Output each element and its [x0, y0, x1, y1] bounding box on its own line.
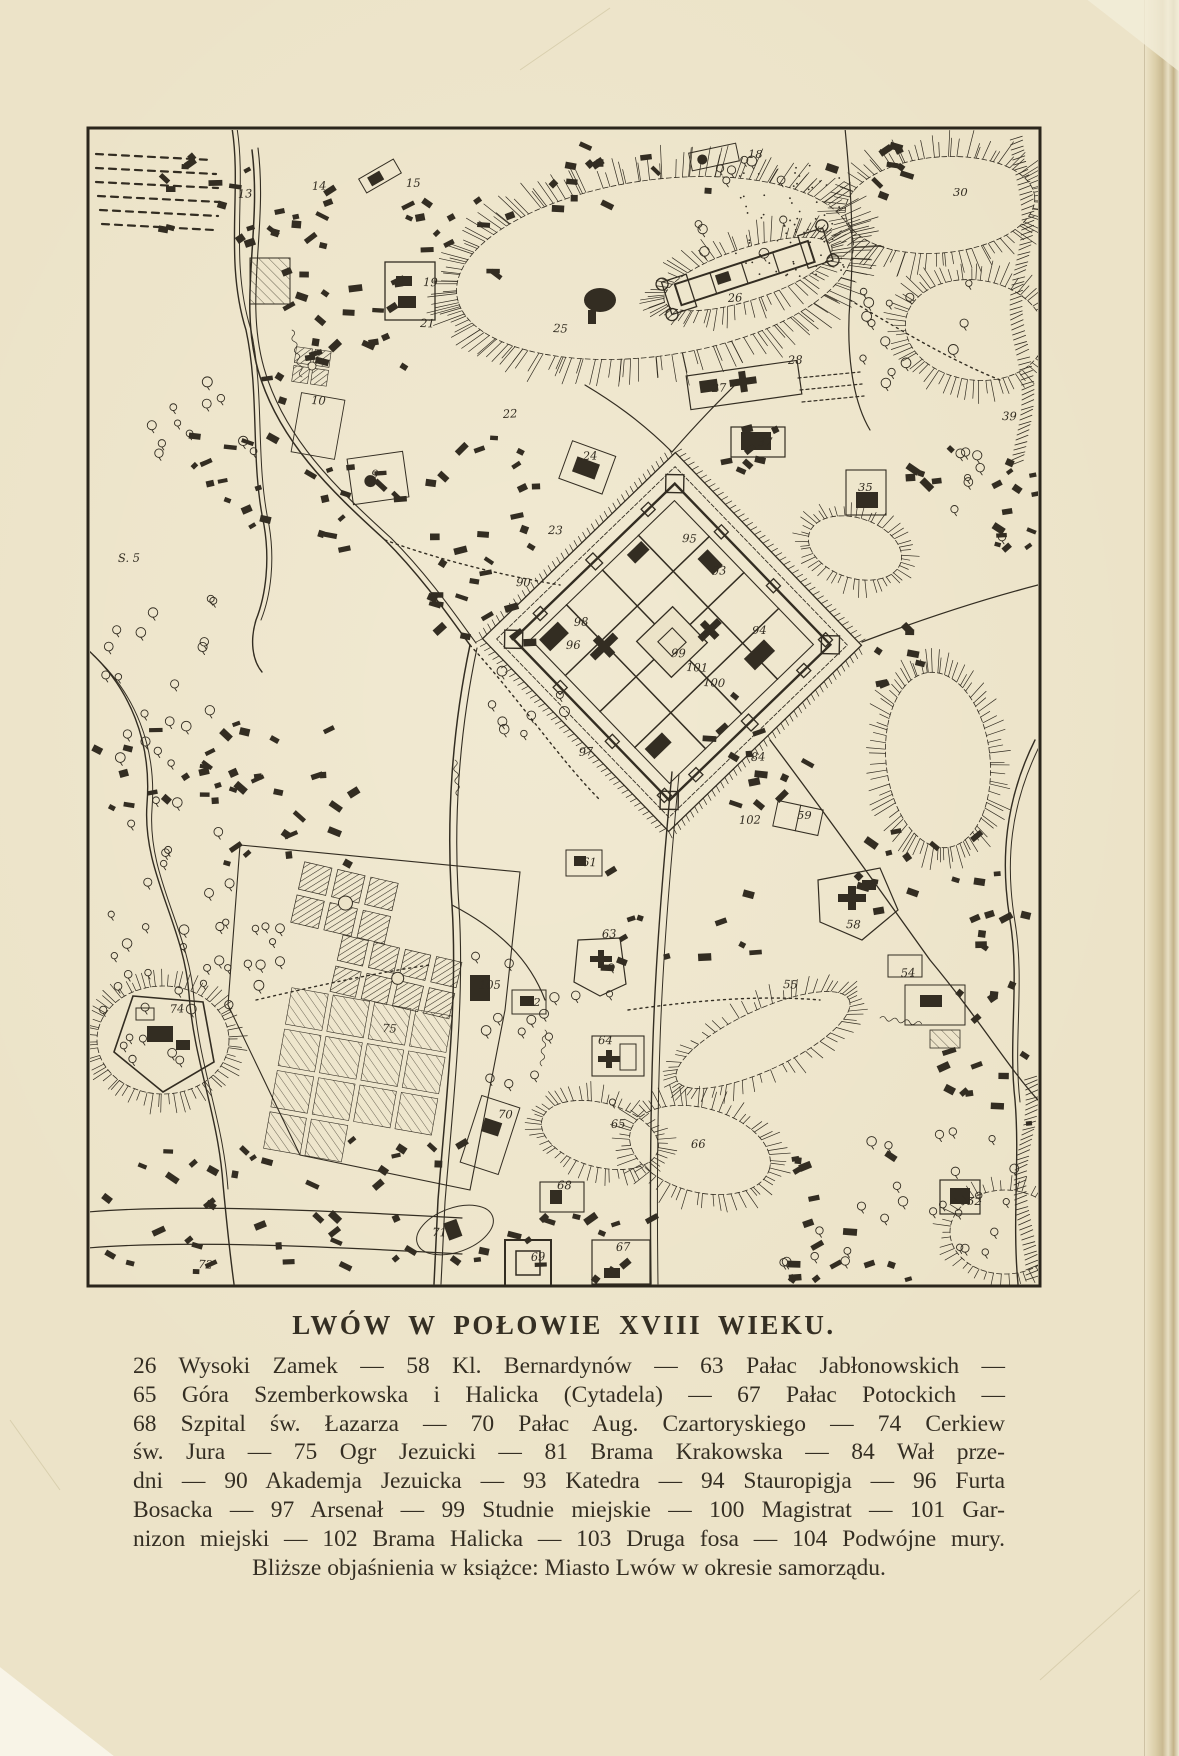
legend-line: św. Jura — 75 Ogr Jezuicki — 81 Brama Kr… [133, 1438, 1005, 1467]
scanned-book-page: 1314151819212526272830399102224373523909… [0, 0, 1179, 1756]
map-label: 24 [582, 448, 598, 463]
map-legend: 26 Wysoki Zamek — 58 Kl. Bernardynów — 6… [133, 1352, 1005, 1582]
map-label: 68 [557, 1178, 572, 1192]
map-label: 19 [423, 275, 438, 289]
map-number-labels: 1314151819212526272830399102224373523909… [118, 147, 1017, 1272]
map-label: 14 [312, 178, 327, 193]
book-page-edge [1144, 0, 1179, 1756]
map-label: 67 [616, 1239, 632, 1254]
high-castle [653, 218, 842, 322]
legend-line: 26 Wysoki Zamek — 58 Kl. Bernardynów — 6… [133, 1352, 1005, 1381]
map-label: 93 [711, 563, 726, 578]
roads [88, 128, 1038, 1284]
map-label: 66 [691, 1137, 706, 1151]
legend-line: dni — 90 Akademja Jezuicka — 93 Katedra … [133, 1467, 1005, 1496]
map-label: 21 [419, 316, 435, 331]
map-label: 97 [578, 744, 594, 759]
notable-buildings [291, 143, 980, 1286]
map-label: 99 [671, 646, 686, 660]
map-label: 37 [758, 435, 774, 449]
map-label: 90 [516, 575, 531, 590]
map-label: 70 [498, 1107, 513, 1122]
map-label: 58 [846, 917, 861, 932]
map-title: LWÓW W POŁOWIE XVIII WIEKU. [88, 1310, 1040, 1341]
map-label: 22 [501, 406, 517, 421]
map-label: 105 [479, 978, 501, 992]
st-george-fort [114, 996, 214, 1092]
legend-line: nizon miejski — 102 Brama Halicka — 103 … [133, 1525, 1005, 1554]
map-label: 74 [169, 1001, 184, 1016]
map-label: 65 [611, 1116, 626, 1131]
legend-line: 65 Góra Szemberkowska i Halicka (Cytadel… [133, 1381, 1005, 1410]
map-label: S. 5 [118, 551, 140, 565]
legend-footnote: Bliższe objaśnienia w książce: Miasto Lw… [133, 1554, 1005, 1583]
map-label: 9 [371, 467, 379, 481]
map-label: 35 [858, 480, 873, 494]
map-label: 18 [748, 147, 763, 161]
map-label: 59 [797, 808, 812, 822]
map-label: 69 [530, 1249, 545, 1264]
map-label: 62 [526, 995, 541, 1009]
map-label: 64 [598, 1033, 613, 1047]
map-label: 13 [237, 186, 252, 201]
map-label: 27 [711, 380, 728, 395]
map-label: 15 [406, 176, 421, 190]
map-label: 28 [787, 353, 803, 367]
map-label: 84 [751, 749, 766, 764]
river-peltew [88, 128, 1040, 1284]
map-label: 94 [752, 623, 767, 637]
map-label: 63 [602, 926, 617, 941]
map-label: 10 [311, 393, 326, 408]
map-label: 100 [703, 675, 726, 690]
map-label: 30 [953, 185, 968, 199]
map-label: 96 [566, 638, 581, 652]
map-label: 98 [574, 614, 589, 629]
map-label: 52 [967, 1194, 982, 1208]
map-label: 75 [382, 1021, 397, 1036]
garden-parterres [228, 258, 520, 1190]
map-label: 55 [783, 977, 798, 992]
map-label: 95 [682, 531, 697, 546]
map-label: 61 [582, 855, 597, 869]
map-label: 101 [686, 660, 708, 675]
map-content: 1314151819212526272830399102224373523909… [77, 116, 1076, 1289]
map-label: 72 [198, 1257, 213, 1272]
legend-line: Bosacka — 97 Arsenał — 99 Studnie miejsk… [133, 1496, 1005, 1525]
map-label: 25 [552, 321, 568, 336]
map-label: 26 [726, 290, 742, 305]
legend-line: 68 Szpital św. Łazarza — 70 Pałac Aug. C… [133, 1410, 1005, 1439]
map-label: 71 [432, 1225, 447, 1240]
map-label: 54 [900, 965, 915, 980]
map-label: 23 [547, 523, 563, 537]
map-label: 39 [1002, 409, 1017, 423]
map-label: 102 [739, 813, 761, 827]
